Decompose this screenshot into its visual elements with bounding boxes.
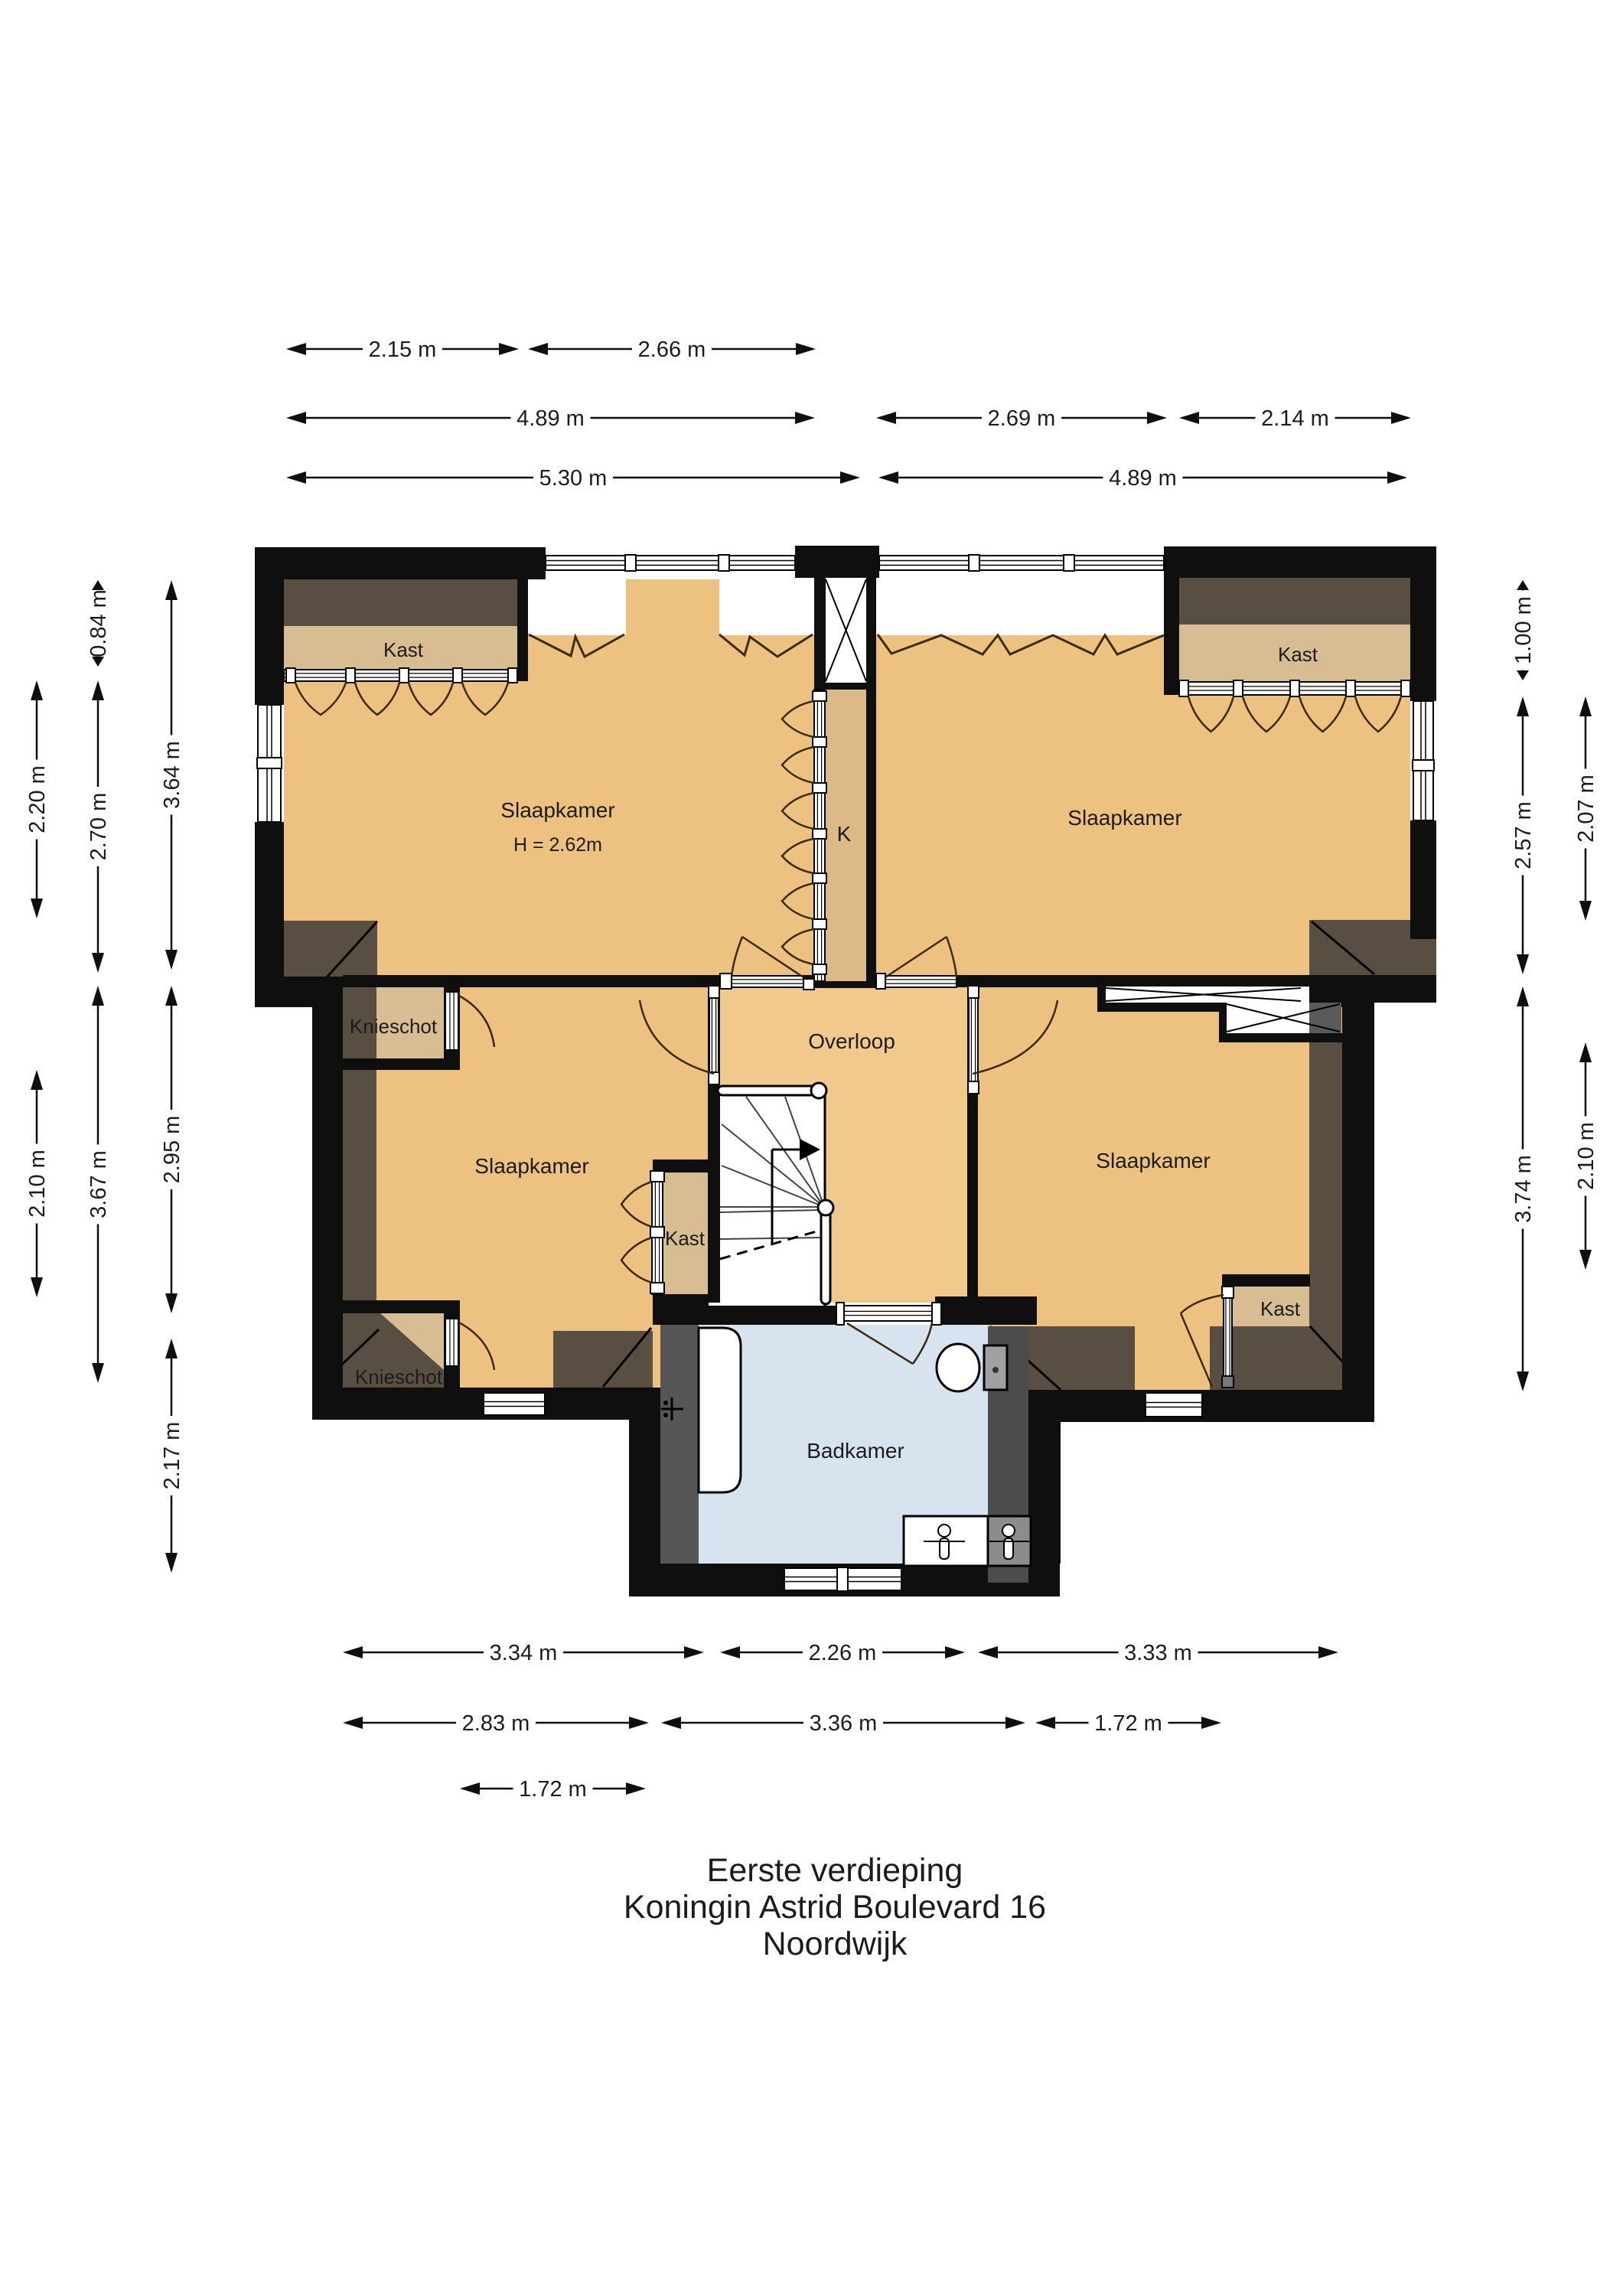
svg-text:Slaapkamer: Slaapkamer xyxy=(1096,1149,1210,1172)
svg-text:2.69 m: 2.69 m xyxy=(988,406,1056,431)
svg-text:2.57 m: 2.57 m xyxy=(1511,801,1536,869)
svg-text:2.14 m: 2.14 m xyxy=(1261,406,1329,431)
svg-text:Kast: Kast xyxy=(1260,1297,1301,1320)
svg-text:3.67 m: 3.67 m xyxy=(86,1150,111,1218)
svg-text:Knieschot: Knieschot xyxy=(355,1365,443,1388)
svg-text:2.17 m: 2.17 m xyxy=(160,1422,184,1490)
svg-text:5.30 m: 5.30 m xyxy=(539,466,608,491)
svg-text:2.10 m: 2.10 m xyxy=(1574,1122,1599,1190)
svg-text:Slaapkamer: Slaapkamer xyxy=(474,1154,588,1178)
svg-text:3.34 m: 3.34 m xyxy=(490,1641,558,1665)
svg-text:2.07 m: 2.07 m xyxy=(1574,775,1599,843)
svg-text:2.70 m: 2.70 m xyxy=(86,793,111,861)
svg-text:3.33 m: 3.33 m xyxy=(1124,1641,1192,1665)
svg-text:2.95 m: 2.95 m xyxy=(160,1116,184,1184)
svg-text:2.20 m: 2.20 m xyxy=(25,765,50,833)
svg-text:H = 2.62m: H = 2.62m xyxy=(513,834,602,856)
svg-text:Eerste verdieping: Eerste verdieping xyxy=(707,1852,963,1889)
svg-text:3.64 m: 3.64 m xyxy=(160,741,184,809)
svg-text:3.74 m: 3.74 m xyxy=(1511,1155,1536,1223)
svg-text:1.72 m: 1.72 m xyxy=(519,1777,587,1802)
svg-text:Kast: Kast xyxy=(383,638,424,661)
svg-text:Knieschot: Knieschot xyxy=(350,1015,438,1038)
svg-text:1.00 m: 1.00 m xyxy=(1511,596,1536,664)
svg-text:2.66 m: 2.66 m xyxy=(638,338,706,362)
svg-text:K: K xyxy=(837,822,852,846)
svg-text:2.26 m: 2.26 m xyxy=(809,1641,877,1665)
svg-text:2.10 m: 2.10 m xyxy=(25,1150,50,1218)
svg-text:0.84 m: 0.84 m xyxy=(86,589,111,657)
svg-text:2.83 m: 2.83 m xyxy=(462,1711,530,1736)
svg-text:Koningin Astrid Boulevard 16: Koningin Astrid Boulevard 16 xyxy=(624,1889,1046,1926)
svg-text:Slaapkamer: Slaapkamer xyxy=(500,798,614,822)
svg-text:Noordwijk: Noordwijk xyxy=(763,1926,908,1962)
svg-text:Kast: Kast xyxy=(665,1227,706,1250)
svg-text:4.89 m: 4.89 m xyxy=(517,406,585,431)
svg-text:Overloop: Overloop xyxy=(808,1029,895,1053)
svg-text:1.72 m: 1.72 m xyxy=(1094,1711,1162,1736)
svg-text:Badkamer: Badkamer xyxy=(807,1439,904,1463)
svg-text:4.89 m: 4.89 m xyxy=(1109,466,1177,491)
svg-text:Slaapkamer: Slaapkamer xyxy=(1067,806,1181,830)
svg-text:3.36 m: 3.36 m xyxy=(810,1711,878,1736)
svg-text:2.15 m: 2.15 m xyxy=(369,338,437,362)
svg-text:Kast: Kast xyxy=(1278,643,1318,666)
